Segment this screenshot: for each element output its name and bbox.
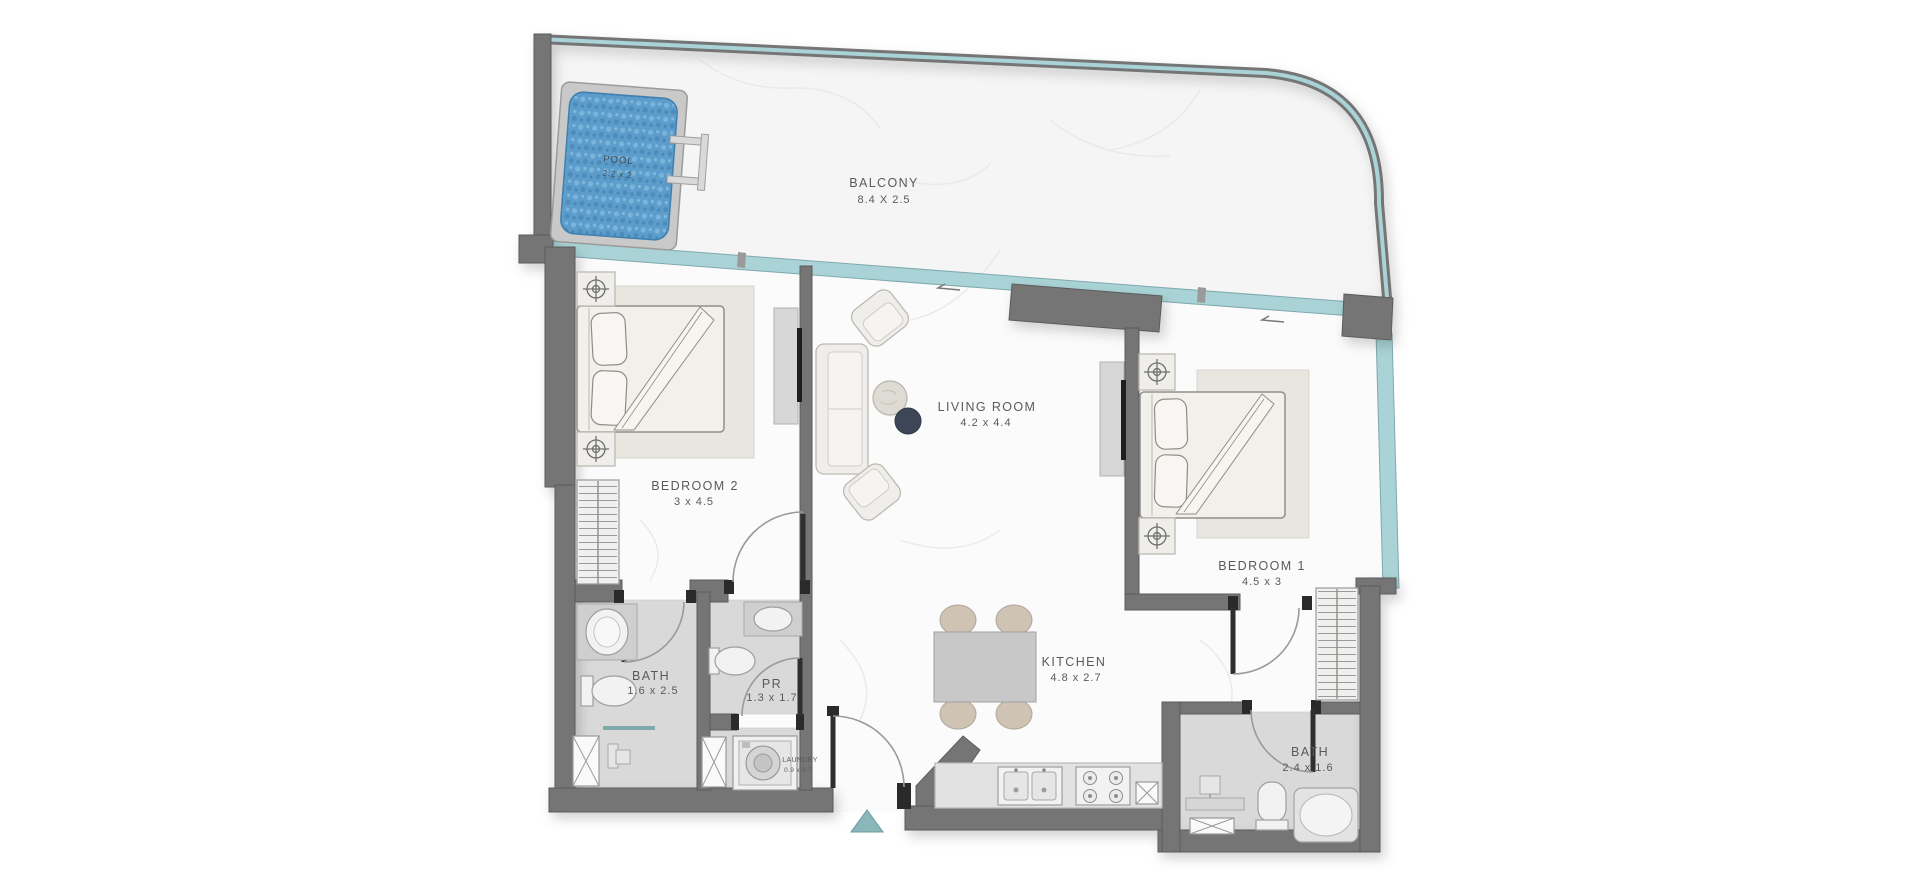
- pr-dims: 1.3 x 1.7: [746, 692, 797, 704]
- dining-chair-icon: [940, 605, 976, 635]
- stove-icon: [1076, 767, 1130, 805]
- vanity-counter: [1186, 798, 1244, 810]
- door-jamb: [614, 590, 624, 603]
- toilet-icon: [709, 647, 755, 675]
- door-jamb: [796, 714, 804, 730]
- washbasin-icon: [754, 607, 792, 631]
- window-mullion: [1197, 287, 1206, 303]
- floor-vent-icon: [1190, 818, 1234, 834]
- bath-left-label: BATH: [632, 669, 670, 683]
- dining-table-icon: [934, 632, 1036, 702]
- door-jamb: [1228, 596, 1238, 610]
- bedroom1-label: BEDROOM 1: [1218, 559, 1306, 573]
- pillow-icon: [1154, 398, 1188, 449]
- balcony-dims: 8.4 X 2.5: [857, 194, 910, 206]
- sink-icon: [998, 767, 1062, 805]
- bottom-wall-left: [549, 788, 833, 812]
- pillow-icon: [1154, 454, 1188, 507]
- bathtub-icon: [1294, 788, 1358, 842]
- bedroom1-left-wall: [1125, 328, 1139, 608]
- tv-console: [1100, 362, 1124, 476]
- living-room-dims: 4.2 x 4.4: [960, 417, 1011, 429]
- kitchen-dims: 4.8 x 2.7: [1050, 672, 1101, 684]
- bedroom1-dims: 4.5 x 3: [1242, 576, 1282, 588]
- bedroom2-dims: 3 x 4.5: [674, 496, 714, 508]
- pool-water: [560, 91, 678, 241]
- pr-label: PR: [762, 677, 782, 691]
- dining-chair-icon: [940, 699, 976, 729]
- door-jamb: [800, 580, 810, 594]
- toilet-icon: [1256, 782, 1288, 830]
- tv-icon: [797, 328, 802, 402]
- balcony-right-wall-block: [1342, 294, 1393, 340]
- dining-chair-icon: [996, 605, 1032, 635]
- bottom-wall-kitchen: [905, 806, 1165, 830]
- laundry-label: LAUNDRY: [782, 757, 817, 764]
- bath-left-dims: 1.6 x 2.5: [627, 685, 678, 697]
- bath-right-dims: 2.4 x 1.6: [1282, 762, 1333, 774]
- pool-label: POOL: [603, 154, 634, 167]
- floor-plan-svg: POOL 2.2 x 2 BEDROOM 2 3 x 4.5: [0, 0, 1920, 891]
- pillow-icon: [591, 312, 628, 366]
- door-jamb: [1302, 596, 1312, 610]
- entrance-arrow-icon: [851, 810, 883, 832]
- laundry-dims: 0.9 x 0.7: [784, 767, 812, 774]
- left-wall-upper: [545, 247, 575, 487]
- bedroom1-bottom-wall: [1125, 594, 1240, 610]
- door-jamb: [731, 714, 739, 730]
- pillow-icon: [591, 370, 628, 426]
- window-mullion: [737, 252, 746, 268]
- vanity-mirror: [1200, 776, 1220, 794]
- bath-right-left-wall: [1162, 702, 1180, 852]
- floor-vent-icon: [702, 737, 726, 787]
- balcony-label: BALCONY: [849, 176, 919, 190]
- wardrobe-icon: [577, 480, 619, 584]
- balcony-left-wall: [534, 34, 551, 250]
- dining-chair-icon: [996, 699, 1032, 729]
- tv-icon: [1121, 380, 1126, 460]
- dresser: [774, 308, 798, 424]
- bedroom2-label: BEDROOM 2: [651, 479, 739, 493]
- floor-vent-icon: [1136, 782, 1158, 804]
- floor-plan-canvas: POOL 2.2 x 2 BEDROOM 2 3 x 4.5: [0, 0, 1920, 891]
- right-wall: [1360, 586, 1380, 852]
- door-jamb: [686, 590, 696, 603]
- door-jamb: [724, 580, 734, 594]
- left-wall-lower: [555, 485, 575, 812]
- door-jamb: [827, 706, 839, 716]
- stool-icon: [895, 408, 921, 434]
- washbasin-inner: [594, 617, 620, 647]
- shower-glass-partition: [603, 726, 655, 730]
- bath-right-label: BATH: [1291, 745, 1329, 759]
- kitchen-label: KITCHEN: [1042, 655, 1107, 669]
- floor-vent-icon: [573, 736, 599, 786]
- wardrobe-icon: [1316, 588, 1358, 700]
- living-room-label: LIVING ROOM: [938, 400, 1037, 414]
